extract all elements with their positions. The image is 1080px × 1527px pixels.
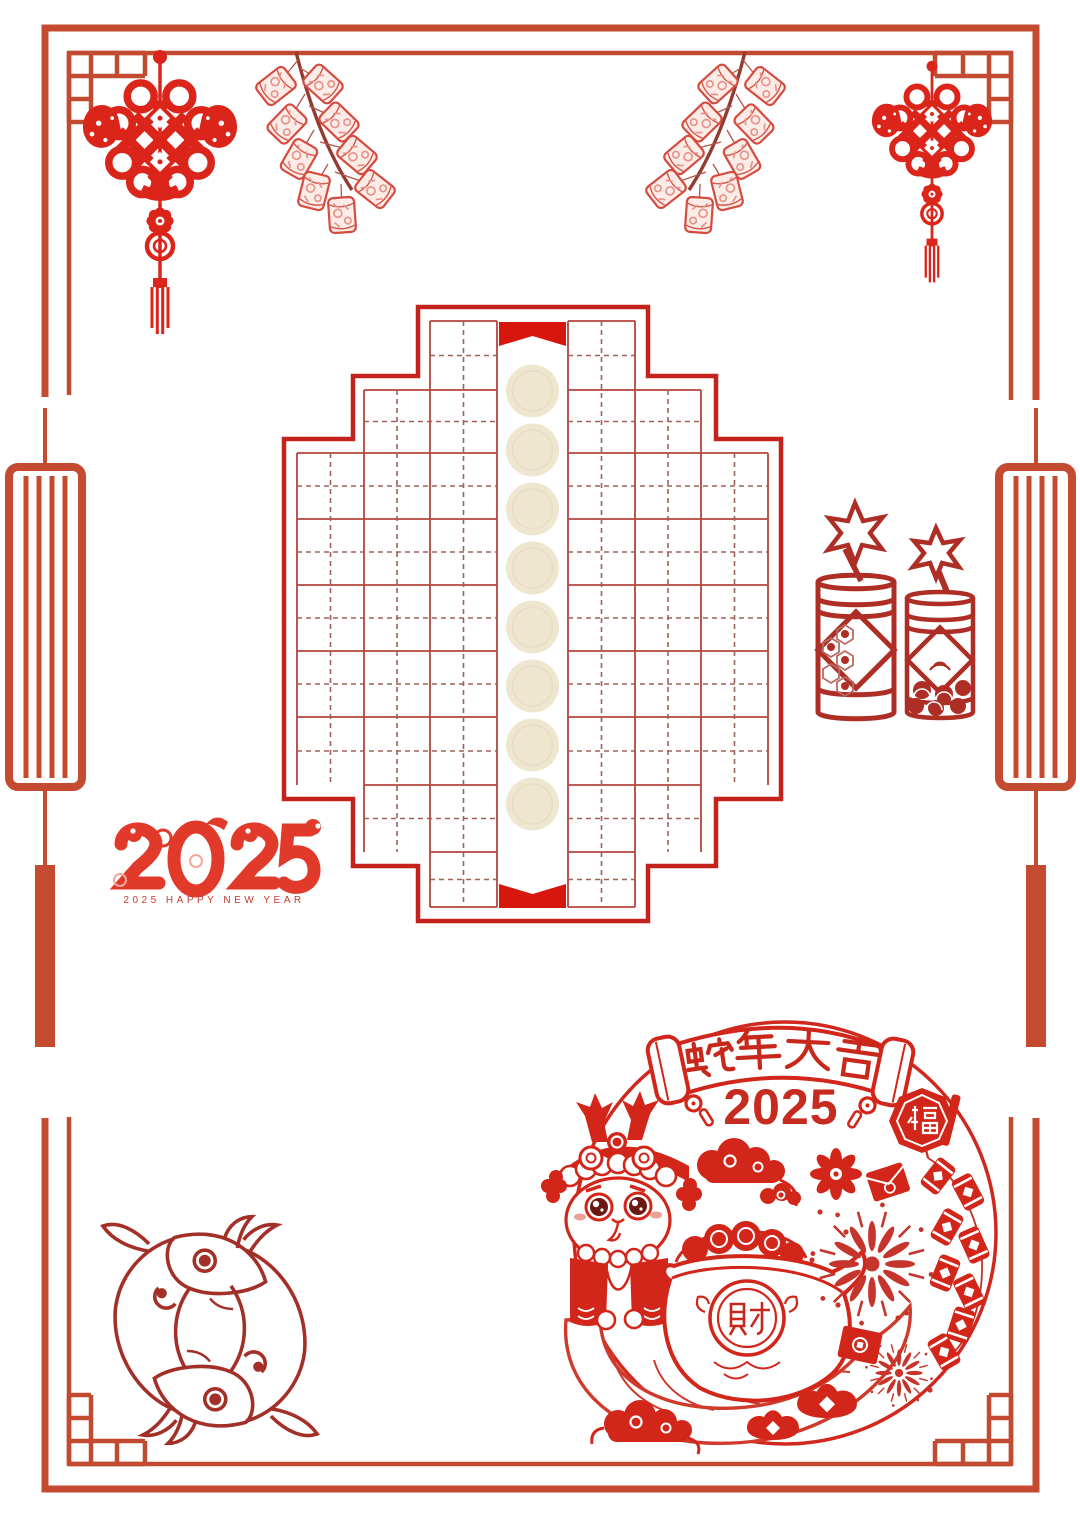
svg-text:2025 HAPPY NEW YEAR: 2025 HAPPY NEW YEAR	[123, 895, 304, 906]
svg-text:2025: 2025	[723, 1079, 838, 1135]
